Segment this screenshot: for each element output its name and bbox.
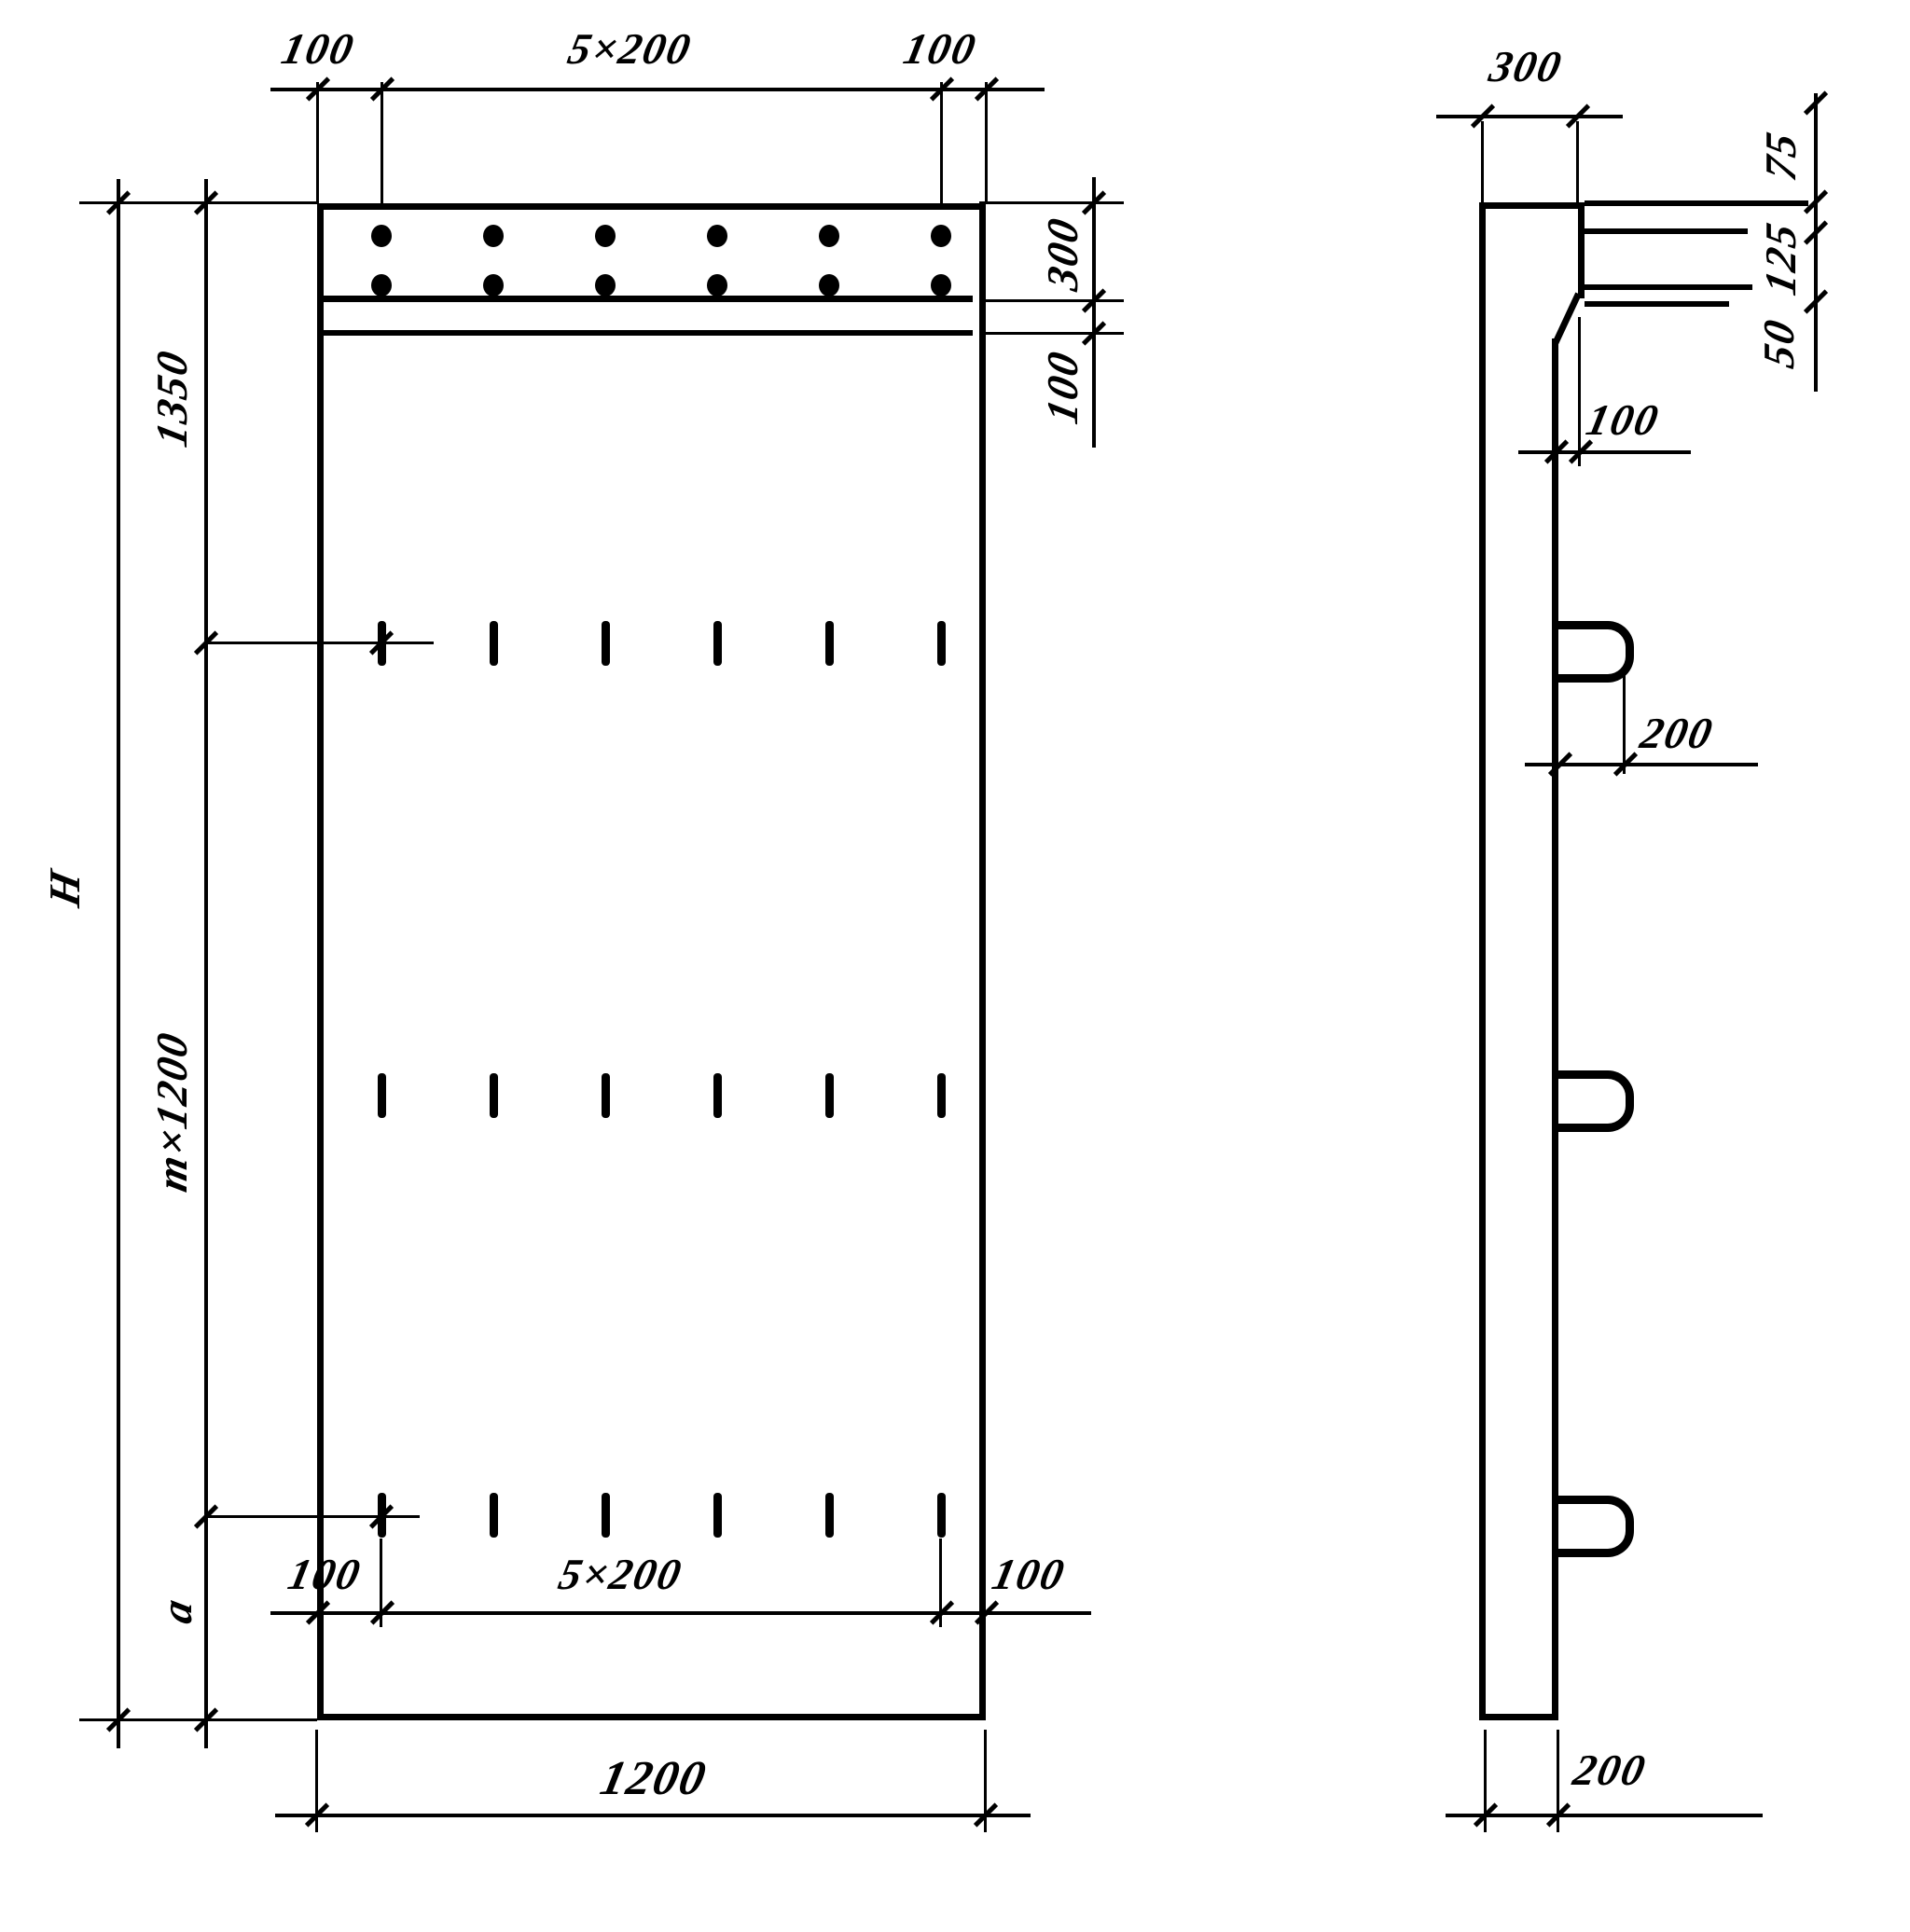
slot-mark (490, 621, 498, 666)
anchor-dot (819, 274, 839, 297)
dim-loop-length: 200 (1636, 709, 1718, 759)
side-left-face (1479, 202, 1486, 1720)
extension-line (1623, 673, 1626, 774)
dim-step: 100 (1582, 395, 1664, 446)
anchor-dot (595, 225, 616, 247)
slot-mark (713, 1073, 722, 1118)
dimension-line-anchor-stack (1814, 93, 1818, 392)
extension-line (985, 82, 988, 203)
dim-total-height: H (40, 835, 90, 939)
anchor-dot (931, 225, 951, 247)
anchor-dot (483, 274, 504, 297)
dim-overall-width: 1200 (596, 1751, 713, 1806)
slot-mark (825, 621, 834, 666)
dim-band-height: 300 (1038, 183, 1088, 324)
anchor-dot (819, 225, 839, 247)
anchor-dot (707, 274, 727, 297)
dim-inner-left: 100 (284, 1550, 366, 1600)
slot-mark (602, 621, 610, 666)
slot-mark (825, 1493, 834, 1538)
side-bottom-edge (1479, 1714, 1558, 1720)
dim-anchor-upper: 75 (1756, 103, 1806, 207)
dimension-line-total-height (117, 179, 120, 1748)
dimension-line (1092, 177, 1096, 448)
extension-line (1578, 317, 1581, 466)
dim-top-segment: 1350 (147, 327, 198, 468)
slot-mark (937, 1073, 946, 1118)
dim-side-bottom-thickness: 200 (1569, 1746, 1651, 1796)
slot-mark (937, 621, 946, 666)
slot-mark (713, 1493, 722, 1538)
dimension-line-step (1518, 450, 1691, 454)
dim-bottom-segment: a (152, 1558, 202, 1662)
extension-line (940, 82, 943, 203)
side-lower-right-face (1552, 338, 1558, 1720)
dim-top-right: 100 (899, 24, 981, 75)
extension-line (1576, 121, 1579, 202)
dimension-line-side-bottom (1446, 1814, 1763, 1817)
slot-mark (713, 621, 722, 666)
extension-line (316, 82, 319, 203)
lifting-loop (1558, 1070, 1634, 1132)
extension-line (381, 82, 383, 203)
anchor-bar (1585, 301, 1729, 307)
lifting-loop (1558, 1496, 1634, 1557)
anchor-dot (483, 225, 504, 247)
dim-middle-segment: m×1200 (147, 1013, 198, 1209)
dimension-line-width (275, 1814, 1031, 1817)
side-top-edge (1479, 202, 1585, 209)
dim-top-left: 100 (277, 24, 359, 75)
slot-mark (602, 1073, 610, 1118)
slot-mark (602, 1493, 610, 1538)
dim-inner-right: 100 (988, 1550, 1070, 1600)
anchor-dot (931, 274, 951, 297)
band-strip-line (324, 330, 973, 336)
dim-strip-height: 100 (1038, 316, 1088, 457)
side-upper-right-face (1578, 202, 1585, 298)
dimension-line-inner-bottom (270, 1611, 1091, 1615)
anchor-band-bottom-line (324, 296, 973, 302)
dim-side-top-thickness: 300 (1485, 42, 1567, 92)
dim-anchor-lower: 50 (1754, 291, 1805, 394)
slot-mark (490, 1493, 498, 1538)
extension-line (1481, 121, 1484, 202)
anchor-bar (1585, 284, 1752, 290)
slot-mark (378, 1073, 386, 1118)
slot-mark (937, 1493, 946, 1538)
slot-mark (825, 1073, 834, 1118)
anchor-dot (707, 225, 727, 247)
front-panel-outline (317, 203, 986, 1720)
dim-top-center: 5×200 (563, 24, 696, 75)
slot-mark (490, 1073, 498, 1118)
dimension-line-side-top (1436, 115, 1623, 118)
anchor-dot (371, 225, 392, 247)
dim-inner-center: 5×200 (554, 1550, 686, 1600)
extension-line (204, 642, 434, 644)
extension-line (204, 1515, 420, 1518)
anchor-bar (1585, 228, 1748, 234)
dimension-line-top (270, 88, 1045, 91)
anchor-dot (595, 274, 616, 297)
anchor-dot (371, 274, 392, 297)
panel-technical-drawing: 100 5×200 100 300 100 1350 H m×1200 a 10… (0, 0, 1910, 1932)
